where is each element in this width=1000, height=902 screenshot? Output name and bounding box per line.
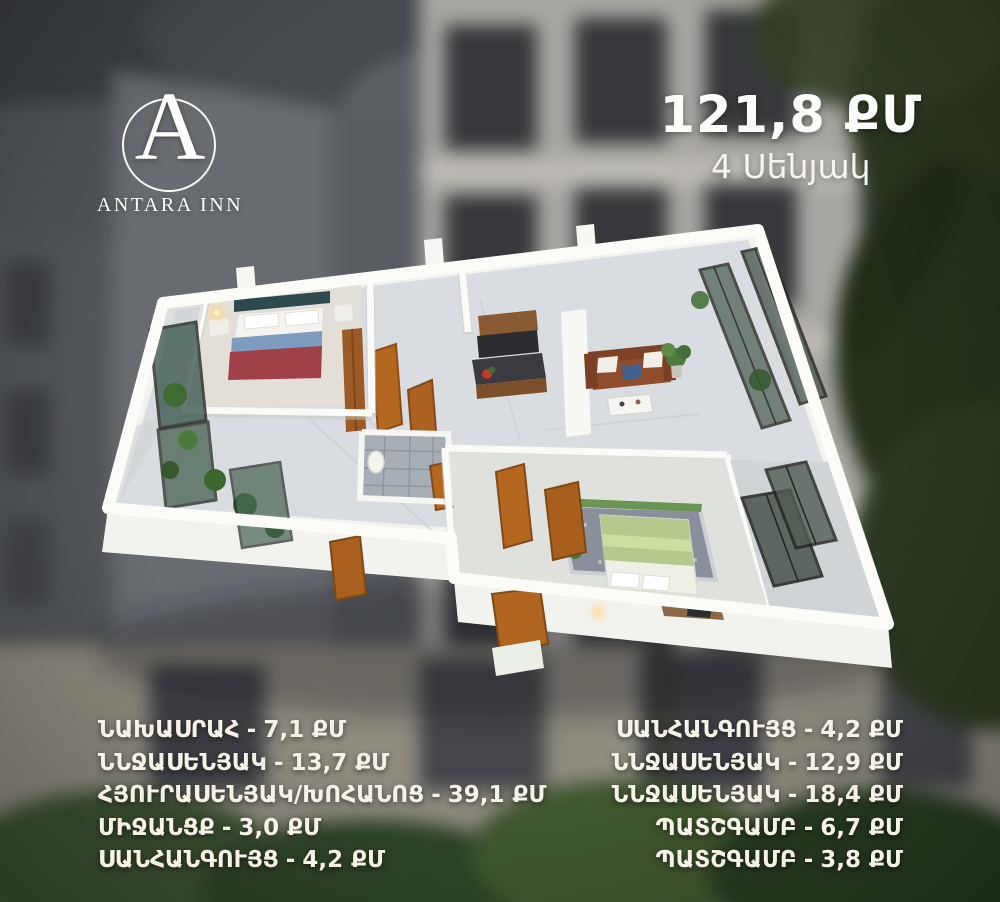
logo-name: ANTARA INN: [88, 194, 252, 217]
room-area: 4,2 ՔՄ: [820, 717, 903, 743]
room-area-item: ՍԱՆՀԱՆԳՈՒՅՑ - 4,2 ՔՄ: [612, 714, 903, 747]
room-list-left: ՆԱԽԱՍՐԱՀ - 7,1 ՔՄ ՆՆՋԱՍԵՆՅԱԿ - 13,7 ՔՄ Հ…: [98, 714, 547, 877]
room-label: ՆՆՋԱՍԵՆՅԱԿ: [612, 750, 781, 776]
separator: -: [788, 750, 798, 776]
logo: A ANTARA INN: [88, 90, 252, 222]
promo-graphic: A ANTARA INN 121,8 ՔՄ 4 Սենյակ ՆԱԽԱՍՐԱՀ …: [0, 0, 1000, 902]
room-area-item: ՍԱՆՀԱՆԳՈՒՅՑ - 4,2 ՔՄ: [98, 844, 547, 877]
separator: -: [286, 847, 296, 873]
room-area-item: ՀՅՈՒՐԱՍԵՆՅԱԿ/ԽՈՀԱՆՈՑ - 39,1 ՔՄ: [98, 779, 547, 812]
room-label: ՊԱՏՇԳԱՄԲ: [656, 847, 797, 873]
room-label: ՊԱՏՇԳԱՄԲ: [656, 815, 797, 841]
separator: -: [274, 750, 284, 776]
room-label: ՄԻՋԱՆՑՔ: [98, 815, 215, 841]
room-area-item: ՄԻՋԱՆՑՔ - 3,0 ՔՄ: [98, 812, 547, 845]
separator: -: [431, 782, 441, 808]
room-count: 4 Սենյակ: [660, 147, 922, 186]
separator: -: [804, 847, 814, 873]
room-label: ՍԱՆՀԱՆԳՈՒՅՑ: [616, 717, 797, 743]
room-list-right: ՍԱՆՀԱՆԳՈՒՅՑ - 4,2 ՔՄ ՆՆՋԱՍԵՆՅԱԿ - 12,9 Ք…: [612, 714, 903, 877]
room-area: 3,0 ՔՄ: [238, 815, 321, 841]
room-area: 7,1 ՔՄ: [263, 717, 346, 743]
room-area-item: ՊԱՏՇԳԱՄԲ - 3,8 ՔՄ: [612, 844, 903, 877]
room-label: ՆԱԽԱՍՐԱՀ: [98, 717, 240, 743]
room-label: ՀՅՈՒՐԱՍԵՆՅԱԿ/ԽՈՀԱՆՈՑ: [98, 782, 424, 808]
separator: -: [804, 717, 814, 743]
logo-monogram: A: [88, 78, 252, 176]
room-area: 12,9 ՔՄ: [804, 750, 903, 776]
room-area-item: ՊԱՏՇԳԱՄԲ - 6,7 ՔՄ: [612, 812, 903, 845]
room-area-item: ՆԱԽԱՍՐԱՀ - 7,1 ՔՄ: [98, 714, 547, 747]
separator: -: [804, 815, 814, 841]
room-label: ՆՆՋԱՍԵՆՅԱԿ: [612, 782, 781, 808]
room-area: 3,8 ՔՄ: [820, 847, 903, 873]
headline: 121,8 ՔՄ 4 Սենյակ: [660, 88, 922, 186]
separator: -: [788, 782, 798, 808]
room-area: 13,7 ՔՄ: [290, 750, 389, 776]
room-area-item: ՆՆՋԱՍԵՆՅԱԿ - 18,4 ՔՄ: [612, 779, 903, 812]
room-area: 18,4 ՔՄ: [804, 782, 903, 808]
room-area: 6,7 ՔՄ: [820, 815, 903, 841]
room-area: 4,2 ՔՄ: [302, 847, 385, 873]
kitchen: [472, 310, 547, 399]
separator: -: [247, 717, 257, 743]
room-label: ՆՆՋԱՍԵՆՅԱԿ: [98, 750, 267, 776]
room-area-item: ՆՆՋԱՍԵՆՅԱԿ - 12,9 ՔՄ: [612, 747, 903, 780]
separator: -: [222, 815, 232, 841]
room-area: 39,1 ՔՄ: [448, 782, 547, 808]
room-area-item: ՆՆՋԱՍԵՆՅԱԿ - 13,7 ՔՄ: [98, 747, 547, 780]
room-label: ՍԱՆՀԱՆԳՈՒՅՑ: [98, 847, 279, 873]
total-area-value: 121,8 ՔՄ: [660, 88, 922, 144]
